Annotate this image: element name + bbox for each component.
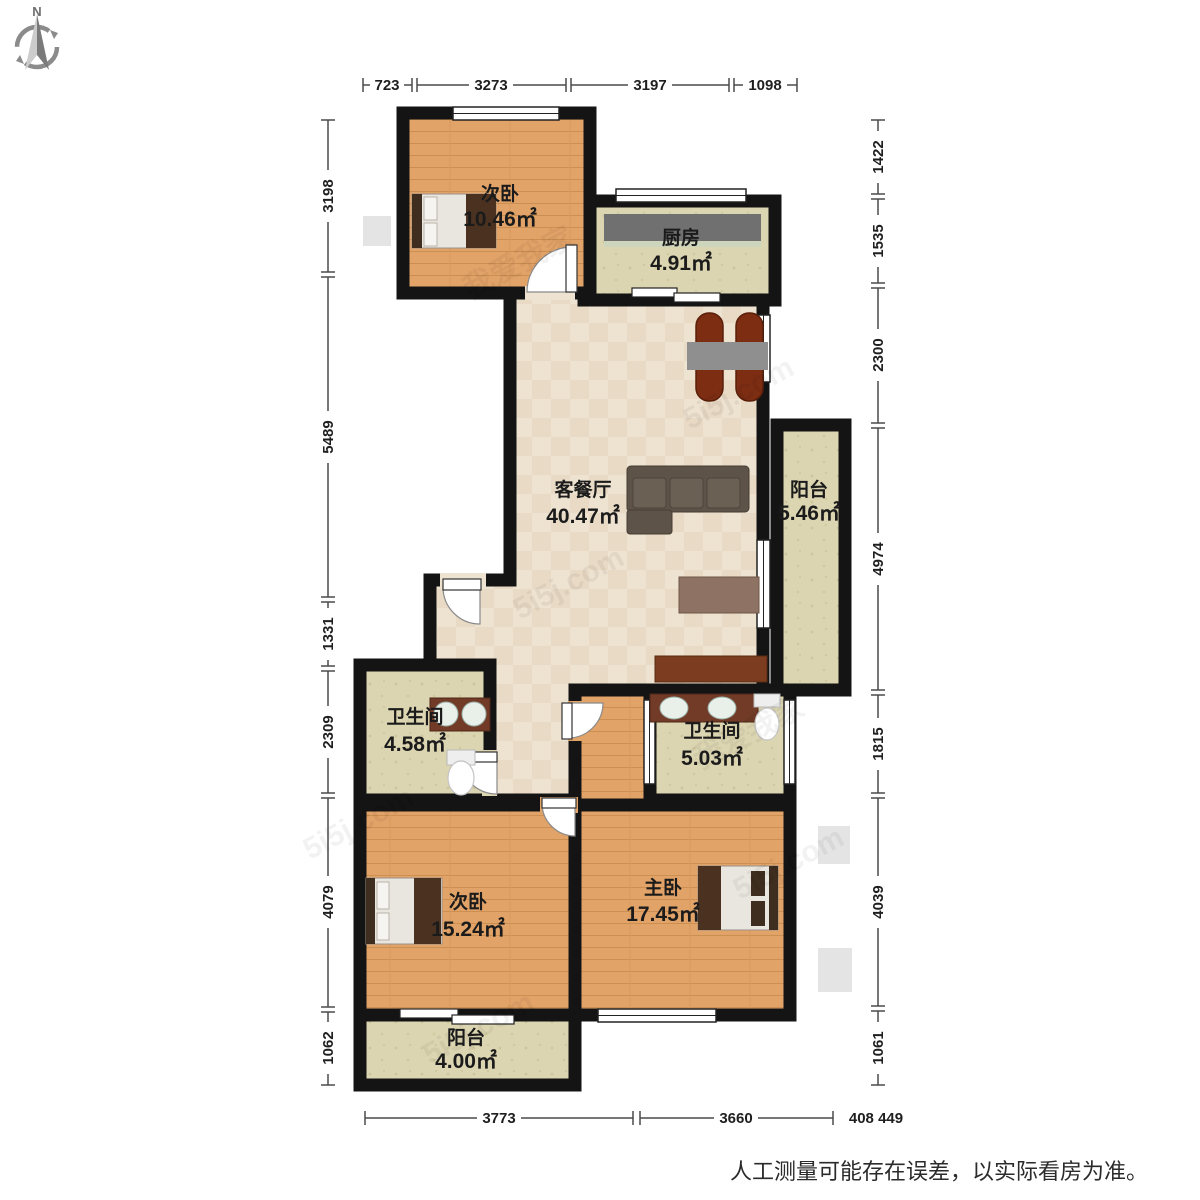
room-area-label: 5.46㎡ <box>778 501 840 525</box>
dim-value: 2300 <box>870 338 887 371</box>
dim-value: 1098 <box>748 77 781 94</box>
dim-value: 1422 <box>870 140 887 173</box>
dimension-bottom: 3773 3660 408 449 <box>365 1109 903 1127</box>
window <box>598 1009 716 1022</box>
room-label: 卫生间 <box>683 719 740 742</box>
dimension-right: 1422 1535 2300 4974 1815 4039 1061 <box>870 120 887 1085</box>
room-area-label: 10.46㎡ <box>463 207 537 231</box>
dim-value: 5489 <box>320 420 337 453</box>
compass-arrowhead-icon <box>50 30 58 39</box>
window <box>616 189 746 202</box>
room-area-label: 15.24㎡ <box>431 917 505 941</box>
ac-outdoor-unit <box>818 948 852 992</box>
room-label: 卫生间 <box>386 705 443 728</box>
dim-value: 1535 <box>870 224 887 257</box>
floorplan-canvas: N <box>0 0 1200 1200</box>
room-area-label: 40.47㎡ <box>546 504 620 528</box>
window <box>453 107 559 120</box>
dim-value: 3197 <box>633 77 666 94</box>
room-area-label: 4.00㎡ <box>435 1049 497 1073</box>
dim-value: 3660 <box>719 1110 752 1127</box>
room-area-label: 5.03㎡ <box>681 746 743 770</box>
dim-value: 408 449 <box>849 1110 903 1127</box>
toilet <box>447 750 475 795</box>
room-label: 厨房 <box>662 226 700 249</box>
dim-value: 4079 <box>320 885 337 918</box>
room-area-label: 4.91㎡ <box>650 251 712 275</box>
dim-value: 1331 <box>320 617 337 650</box>
tv-stand <box>679 577 759 613</box>
room-label: 客餐厅 <box>554 478 611 501</box>
room-label: 阳台 <box>447 1026 485 1049</box>
room-label: 阳台 <box>790 478 828 501</box>
room-area-label: 17.45㎡ <box>626 902 700 926</box>
floorplan-page: N <box>0 0 1200 1200</box>
room-label: 次卧 <box>481 182 519 205</box>
compass: N <box>16 4 58 70</box>
dim-value: 723 <box>374 77 399 94</box>
dim-value: 2309 <box>320 715 337 748</box>
dimension-left: 3198 5489 1331 2309 4079 1062 <box>320 120 337 1085</box>
dim-value: 1062 <box>320 1031 337 1064</box>
room-area-label: 4.58㎡ <box>384 732 446 756</box>
dim-value: 1815 <box>870 727 887 760</box>
room-label: 次卧 <box>449 890 487 913</box>
room-balcony-east <box>777 425 845 690</box>
disclaimer-text: 人工测量可能存在误差，以实际看房为准。 <box>730 1154 1148 1186</box>
dim-value: 4974 <box>870 542 887 576</box>
dim-value: 4039 <box>870 885 887 918</box>
dim-value: 1061 <box>870 1031 887 1064</box>
room-label: 主卧 <box>644 877 682 899</box>
compass-arrowhead-icon <box>16 55 24 64</box>
dimension-top: 723 3273 3197 1098 <box>363 76 797 94</box>
tv-cabinet <box>655 656 767 682</box>
ac-outdoor-unit <box>363 216 391 246</box>
dim-value: 3273 <box>474 77 507 94</box>
dim-value: 3198 <box>320 179 337 212</box>
dim-value: 3773 <box>482 1110 515 1127</box>
